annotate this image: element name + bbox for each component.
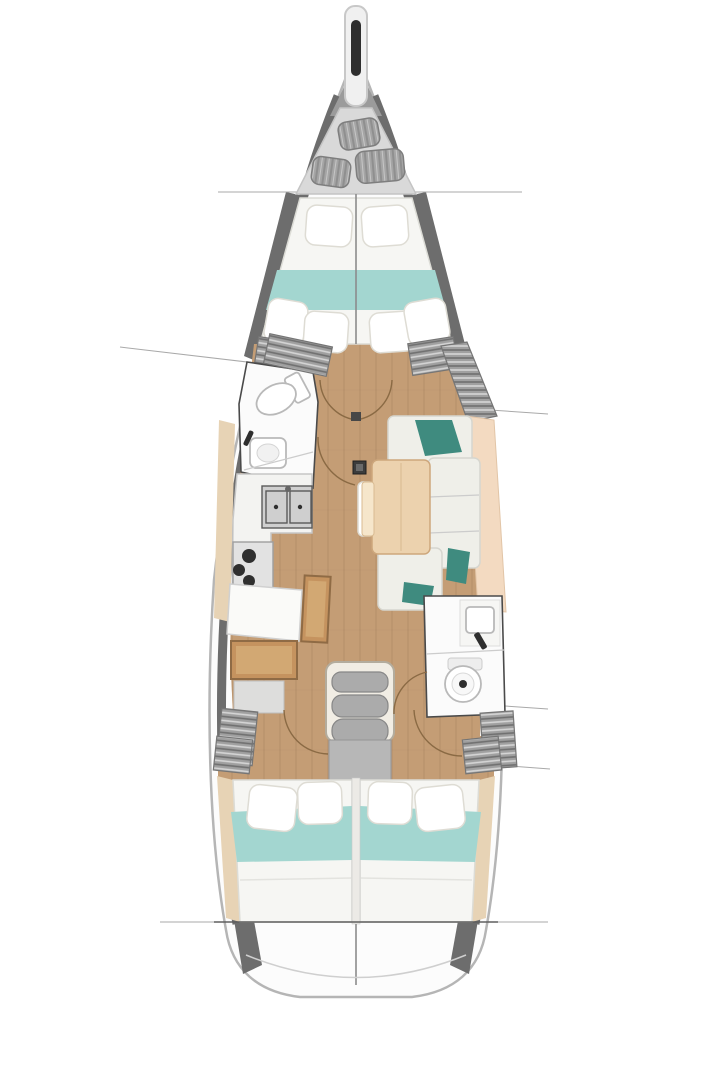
door-hinge-block bbox=[351, 412, 361, 421]
pillow bbox=[414, 784, 466, 833]
fender-roll bbox=[355, 148, 406, 184]
pillow bbox=[305, 204, 354, 247]
aft-sink-basin bbox=[466, 607, 494, 633]
locker-aft-starboard bbox=[462, 736, 501, 774]
burner bbox=[233, 564, 245, 576]
companionway-stairs bbox=[326, 662, 394, 790]
salon-table-leaf bbox=[362, 482, 374, 536]
mast-foot-inner bbox=[356, 464, 363, 471]
forward-head-room bbox=[239, 362, 318, 488]
yacht-floor-plan-canvas bbox=[0, 0, 713, 1080]
stair-tread bbox=[332, 672, 388, 692]
nav-table-top bbox=[227, 584, 302, 641]
locker-aft-port bbox=[213, 736, 252, 774]
nav-desk-inner bbox=[236, 646, 292, 674]
nav-panel bbox=[234, 681, 284, 713]
aft-bed-divider bbox=[352, 778, 360, 924]
pillow bbox=[246, 784, 298, 833]
teal-pillow bbox=[446, 548, 470, 584]
burner bbox=[242, 549, 256, 563]
drain bbox=[274, 505, 278, 509]
fender-roll bbox=[310, 155, 352, 188]
stair-tread bbox=[332, 695, 388, 717]
nav-seat-inner bbox=[305, 581, 326, 638]
anchor-roller-slot bbox=[351, 20, 361, 76]
pillow bbox=[297, 781, 342, 825]
drain bbox=[298, 505, 302, 509]
sink-basin bbox=[257, 444, 279, 462]
pillow bbox=[361, 204, 410, 247]
fender-roll bbox=[337, 117, 381, 152]
pillow bbox=[367, 781, 412, 825]
bowsprit bbox=[345, 6, 367, 106]
yacht-floor-plan bbox=[0, 0, 713, 1080]
galley-faucet bbox=[285, 486, 291, 492]
toilet-drain bbox=[459, 680, 467, 688]
